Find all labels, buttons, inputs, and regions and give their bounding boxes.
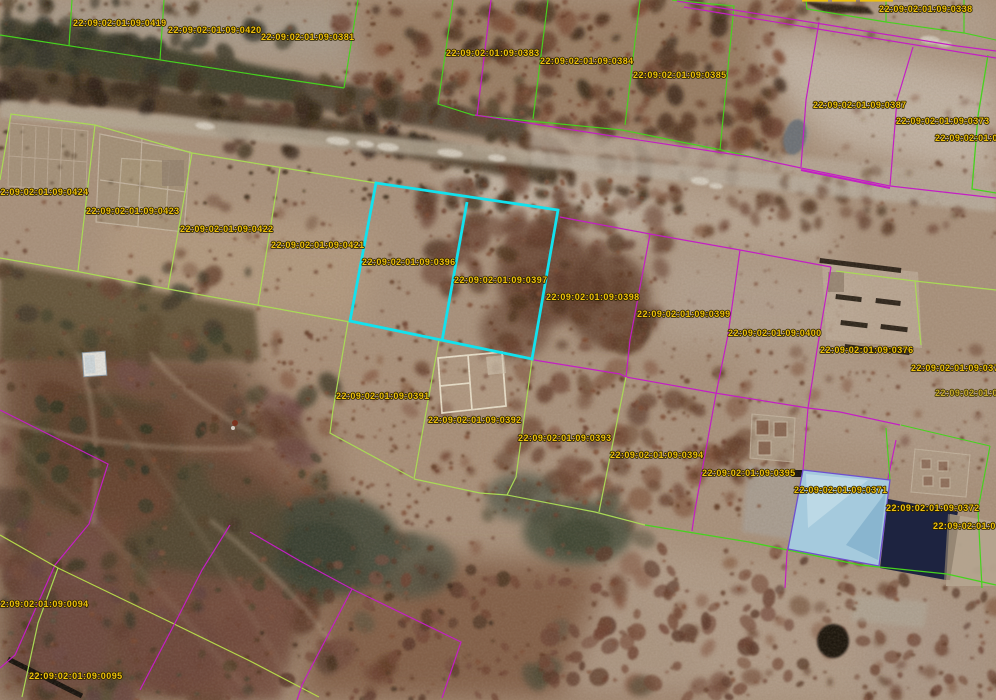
svg-text:22:09:02:01:09:0381: 22:09:02:01:09:0381: [261, 32, 355, 42]
svg-text:22:09:02:01:09:0376: 22:09:02:01:09:0376: [820, 345, 914, 355]
svg-text:22:09:02:01:09:0392: 22:09:02:01:09:0392: [428, 415, 522, 425]
svg-text:22:09:02:01:09:0419: 22:09:02:01:09:0419: [73, 18, 167, 28]
svg-text:22:09:02:01:0: 22:09:02:01:0: [933, 521, 996, 531]
svg-text:22:09:02:01:09:0094: 22:09:02:01:09:0094: [0, 599, 89, 609]
svg-text:22:09:02:01:09:0391: 22:09:02:01:09:0391: [336, 391, 430, 401]
svg-text:22:09:02:01:09:0387: 22:09:02:01:09:0387: [813, 100, 907, 110]
svg-text:22:09:02:01:09:0384: 22:09:02:01:09:0384: [540, 56, 634, 66]
svg-text:22:09:02:01:09:0373: 22:09:02:01:09:0373: [896, 116, 990, 126]
svg-text:22:09:02:01:0: 22:09:02:01:0: [935, 133, 996, 143]
svg-text:22:09:02:01:09:0394: 22:09:02:01:09:0394: [610, 450, 704, 460]
svg-text:22:09:02:01:09:0400: 22:09:02:01:09:0400: [728, 328, 822, 338]
svg-text:22:09:02:01:09:0371: 22:09:02:01:09:0371: [794, 485, 888, 495]
svg-text:22:09:02:01:09:0398: 22:09:02:01:09:0398: [546, 292, 640, 302]
svg-text:22:09:02:01:09:0396: 22:09:02:01:09:0396: [362, 257, 456, 267]
svg-text:22:09:02:01:09:0399: 22:09:02:01:09:0399: [637, 309, 731, 319]
svg-text:22:09:02:01:09:0423: 22:09:02:01:09:0423: [86, 206, 180, 216]
svg-text:22:09:02:01:09:0383: 22:09:02:01:09:0383: [446, 48, 540, 58]
svg-text:22:09:02:01:09:0424: 22:09:02:01:09:0424: [0, 187, 89, 197]
svg-text:22:09:02:01:09:0338: 22:09:02:01:09:0338: [879, 4, 973, 14]
svg-text:22:09:02:01:09:0095: 22:09:02:01:09:0095: [29, 671, 123, 681]
svg-text:22:09:02:01:09:0395: 22:09:02:01:09:0395: [702, 468, 796, 478]
svg-text:22:09:02:01:09:0397: 22:09:02:01:09:0397: [454, 275, 548, 285]
svg-text:22:09:02:01:09:0372: 22:09:02:01:09:0372: [911, 363, 996, 373]
svg-text:22:09:02:01:09:0393: 22:09:02:01:09:0393: [518, 433, 612, 443]
svg-text:22:09:02:01:09:0385: 22:09:02:01:09:0385: [633, 70, 727, 80]
svg-text:22:09:02:01:09:0422: 22:09:02:01:09:0422: [180, 224, 274, 234]
svg-text:22:09:02:01:0: 22:09:02:01:0: [935, 388, 996, 398]
svg-text:22:09:02:01:09:0421: 22:09:02:01:09:0421: [271, 240, 365, 250]
svg-text:22:09:02:01:09:0420: 22:09:02:01:09:0420: [168, 25, 262, 35]
svg-text:22:09:02:01:09:0372: 22:09:02:01:09:0372: [886, 503, 980, 513]
